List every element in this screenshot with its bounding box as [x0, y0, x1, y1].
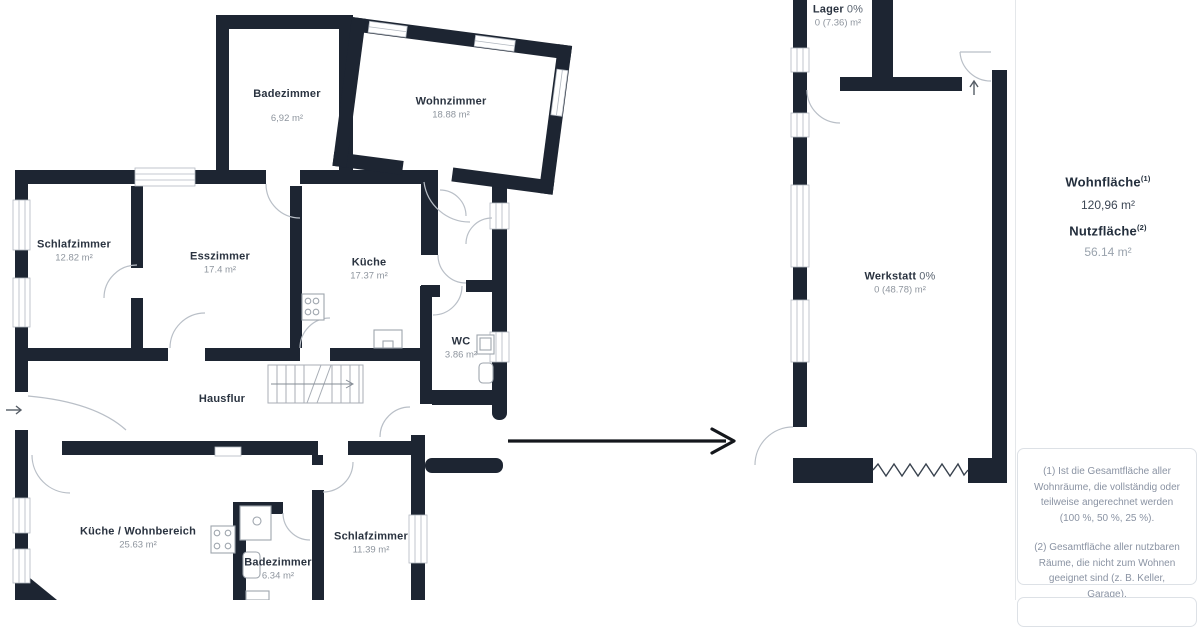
nutzflaeche-value: 56.14 m²	[1016, 245, 1200, 259]
open-boundary-zigzag	[873, 464, 968, 476]
room-label-werkstatt: Werkstatt0% 0 (48.78) m²	[864, 271, 935, 296]
room-label-esszimmer: Esszimmer17.4 m²	[190, 251, 250, 276]
room-label-schlafzimmer-og: Schlafzimmer12.82 m²	[37, 239, 111, 264]
doorway-hall-to-lower-kitchen	[215, 447, 241, 456]
kitchen-stove-lower	[211, 526, 235, 553]
floorplan-page: { "plan": { "rooms": [ {"id":"badezimmer…	[0, 0, 1200, 600]
walls-outbuilding	[793, 0, 1007, 483]
staircase	[268, 365, 363, 403]
bathroom-fixture-cut	[246, 591, 269, 600]
transfer-arrow-icon	[508, 429, 734, 453]
area-summary-sidebar: Wohnfläche(1) 120,96 m² Nutzfläche(2) 56…	[1015, 0, 1200, 600]
bathroom-shower-lower	[240, 506, 271, 540]
footnotes-box: (1) Ist die Gesamtfläche aller Wohnräume…	[1017, 448, 1197, 585]
room-label-wohnzimmer: Wohnzimmer18.88 m²	[416, 96, 487, 121]
wc-toilet	[479, 363, 493, 383]
room-label-schlafzimmer-eg: Schlafzimmer11.39 m²	[334, 531, 408, 556]
nutzflaeche-label: Nutzfläche(2)	[1016, 223, 1200, 238]
wc-sink	[477, 335, 494, 354]
entrance-arrow-icon	[6, 406, 21, 414]
floorplan-svg	[0, 0, 1015, 600]
room-label-kueche: Küche17.37 m²	[350, 257, 388, 282]
footnote-1: (1) Ist die Gesamtfläche aller Wohnräume…	[1030, 464, 1184, 526]
room-label-lager: Lager0% 0 (7.36) m²	[813, 4, 863, 29]
kitchen-sink-upper	[374, 330, 402, 348]
room-label-kueche-wohnbereich: Küche / Wohnbereich25.63 m²	[80, 526, 196, 551]
floorplan-canvas: Badezimmer6,92 m² Wohnzimmer18.88 m² Sch…	[0, 0, 1015, 600]
kitchen-stove-upper	[302, 294, 324, 320]
next-box-sliver	[1017, 597, 1197, 627]
wohnflaeche-value: 120,96 m²	[1016, 198, 1200, 212]
outbuilding-entry-arrow-icon	[970, 81, 978, 95]
room-label-wc: WC3.86 m²	[445, 336, 477, 361]
wohnflaeche-label: Wohnfläche(1)	[1016, 174, 1200, 189]
room-label-badezimmer-og: Badezimmer6,92 m²	[253, 88, 320, 124]
footnote-2: (2) Gesamtfläche aller nutzbaren Räume, …	[1030, 540, 1184, 602]
window-wohnzimmer-right	[551, 69, 568, 116]
room-label-hausflur: Hausflur	[199, 393, 245, 405]
room-label-badezimmer-eg: Badezimmer6.34 m²	[244, 557, 311, 582]
